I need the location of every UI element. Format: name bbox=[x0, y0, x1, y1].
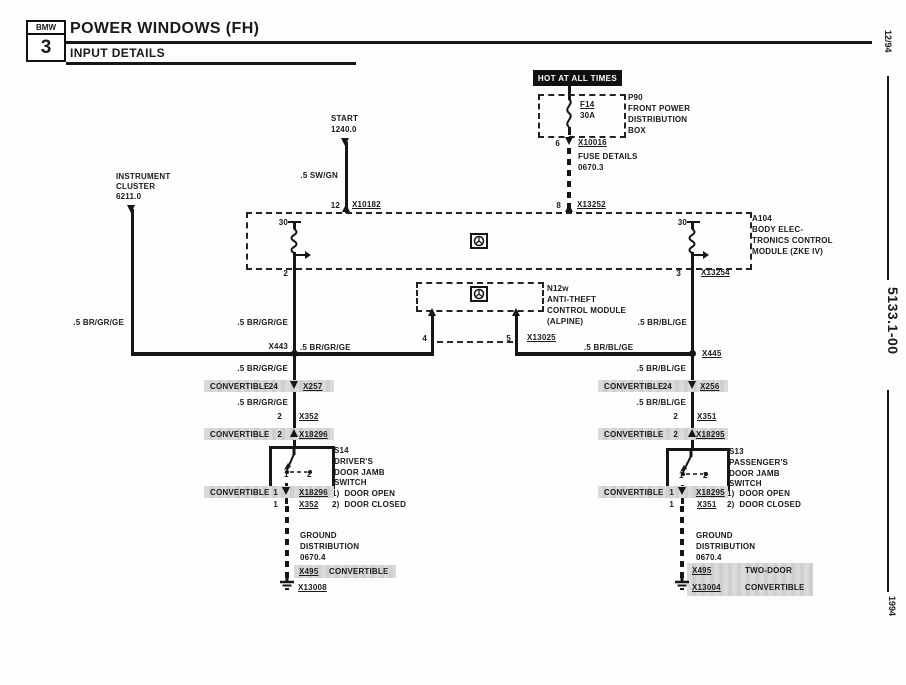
connector-x13008: X13008 bbox=[298, 583, 327, 592]
cluster-ref: 6211.0 bbox=[116, 192, 141, 201]
connector-x256: X256 bbox=[700, 382, 719, 391]
pin-8-label: 8 bbox=[549, 201, 561, 210]
fuse-label: F14 bbox=[580, 100, 594, 109]
a104-right-stub bbox=[691, 222, 694, 229]
convertible-note: CONVERTIBLE bbox=[329, 567, 389, 576]
s13-line1: PASSENGER'S bbox=[729, 458, 788, 467]
connector-x13252: X13252 bbox=[577, 200, 606, 209]
connector-arrow-down-icon bbox=[688, 381, 696, 389]
convertible-note: CONVERTIBLE bbox=[604, 488, 664, 497]
junction-dot bbox=[689, 350, 696, 357]
bus-left-wire-label: .5 BR/GR/GE bbox=[300, 343, 351, 352]
title-rule bbox=[66, 41, 872, 44]
pin-label: 1 bbox=[660, 488, 674, 497]
fuse-details-label: FUSE DETAILS bbox=[578, 152, 638, 161]
connector-x18296: X18296 bbox=[299, 488, 328, 497]
n12w-line1: ANTI-THEFT bbox=[547, 295, 596, 304]
margin-rule-top bbox=[887, 76, 889, 280]
fuse-rating: 30A bbox=[580, 111, 595, 120]
connector-arrow-down-icon bbox=[282, 487, 290, 495]
s13-line2: DOOR JAMB bbox=[729, 469, 780, 478]
wire-instrument-cluster bbox=[131, 209, 134, 356]
connector-x10182: X10182 bbox=[352, 200, 381, 209]
wire-s14-to-ground bbox=[285, 506, 289, 580]
pin-12-label: 12 bbox=[325, 201, 340, 210]
wiring-diagram-page: BMW 3 POWER WINDOWS (FH) INPUT DETAILS 1… bbox=[0, 0, 906, 685]
n12w-id: N12w bbox=[547, 284, 569, 293]
pin-3-label: 3 bbox=[665, 269, 681, 278]
pin-4-label: 4 bbox=[412, 334, 427, 343]
s14-id: S14 bbox=[334, 446, 349, 455]
a104-left-stub bbox=[293, 222, 296, 229]
cluster-line1: INSTRUMENT bbox=[116, 172, 170, 181]
connector-plane-x13025 bbox=[437, 341, 513, 343]
pin-30-left: 30 bbox=[272, 218, 288, 227]
wire-s13-to-ground bbox=[680, 506, 684, 580]
wire-n12w-pin4 bbox=[431, 315, 434, 354]
bus-right-wire-label: .5 BR/BL/GE bbox=[584, 343, 633, 352]
connector-arrow-down-icon bbox=[565, 137, 573, 145]
connector-x351: X351 bbox=[697, 412, 716, 421]
a104-id: A104 bbox=[752, 214, 772, 223]
pin-24-label: 24 bbox=[260, 382, 278, 391]
junction-x443-label: X443 bbox=[250, 342, 288, 351]
contact-arrow-right-icon bbox=[694, 250, 710, 260]
right-wire2-label: .5 BR/BL/GE bbox=[622, 398, 686, 407]
connector-arrow-up-icon bbox=[290, 429, 298, 437]
left-wire2-label: .5 BR/GR/GE bbox=[224, 398, 288, 407]
bus-left bbox=[131, 352, 434, 356]
page-title: POWER WINDOWS (FH) bbox=[70, 20, 259, 38]
convertible-note: CONVERTIBLE bbox=[745, 583, 805, 592]
s13-legend-1: 1) DOOR OPEN bbox=[727, 489, 790, 498]
ground-ref: 0670.4 bbox=[696, 553, 722, 562]
convertible-note: CONVERTIBLE bbox=[604, 430, 664, 439]
cluster-line2: CLUSTER bbox=[116, 182, 155, 191]
pin-label: 1 bbox=[264, 488, 278, 497]
fuse-icon bbox=[563, 99, 575, 127]
bmw-logo-text: BMW bbox=[28, 22, 64, 35]
n12w-line2: CONTROL MODULE bbox=[547, 306, 626, 315]
switch-contact-2: 2 bbox=[307, 470, 312, 479]
contact-arrow-right-icon bbox=[296, 250, 312, 260]
connector-x257: X257 bbox=[303, 382, 322, 391]
s13-legend-2: 2) DOOR CLOSED bbox=[727, 500, 801, 509]
margin-rule-bottom bbox=[887, 390, 889, 592]
s13-line3: SWITCH bbox=[729, 479, 762, 488]
a104-line1: BODY ELEC- bbox=[752, 225, 803, 234]
start-ref: 1240.0 bbox=[331, 125, 357, 134]
module-icon bbox=[470, 233, 488, 249]
connector-x13004: X13004 bbox=[692, 583, 721, 592]
s14-line2: DOOR JAMB bbox=[334, 468, 385, 477]
connector-x495: X495 bbox=[692, 566, 711, 575]
switch-contact-2: 2 bbox=[703, 471, 708, 480]
margin-sheet-number: 5133.1-00 bbox=[885, 287, 901, 355]
ground-line1: GROUND bbox=[300, 531, 337, 540]
connector-x18296: X18296 bbox=[299, 430, 328, 439]
junction-x445-label: X445 bbox=[702, 349, 721, 358]
door-jamb-switch-icon bbox=[666, 448, 724, 485]
start-label: START bbox=[331, 114, 358, 123]
pin-24-label: 24 bbox=[654, 382, 672, 391]
ground-icon bbox=[674, 577, 690, 591]
wire-n12w-pin5 bbox=[515, 315, 518, 354]
ground-ref: 0670.4 bbox=[300, 553, 326, 562]
pin-1-label: 1 bbox=[660, 500, 674, 509]
margin-issue-date: 12/94 bbox=[883, 30, 893, 53]
hot-at-all-times-banner: HOT AT ALL TIMES bbox=[533, 70, 622, 86]
junction-dot bbox=[291, 350, 298, 357]
connector-x18295: X18295 bbox=[696, 430, 725, 439]
page-subtitle: INPUT DETAILS bbox=[70, 46, 165, 60]
wire-start-label: .5 SW/GN bbox=[274, 171, 338, 180]
convertible-note: CONVERTIBLE bbox=[210, 488, 270, 497]
s14-line1: DRIVER'S bbox=[334, 457, 373, 466]
switch-contact-1: 1 bbox=[679, 471, 684, 480]
wire-pin3-label: .5 BR/BL/GE bbox=[623, 318, 687, 327]
margin-year: 1994 bbox=[887, 596, 897, 616]
ground-icon bbox=[279, 577, 295, 591]
connector-arrow-up-icon bbox=[688, 429, 696, 437]
s14-legend-2: 2) DOOR CLOSED bbox=[332, 500, 406, 509]
connector-x18295: X18295 bbox=[696, 488, 725, 497]
connector-arrow-down-icon bbox=[678, 487, 686, 495]
pin-2-label: 2 bbox=[664, 412, 678, 421]
wire-start bbox=[345, 142, 348, 213]
ground-line2: DISTRIBUTION bbox=[696, 542, 755, 551]
n12w-line3: (ALPINE) bbox=[547, 317, 583, 326]
s14-legend-1: 1) DOOR OPEN bbox=[332, 489, 395, 498]
s13-id: S13 bbox=[729, 447, 744, 456]
pin-label: 2 bbox=[268, 430, 282, 439]
wire-cluster-label: .5 BR/GR/GE bbox=[60, 318, 124, 327]
convertible-note: CONVERTIBLE bbox=[210, 430, 270, 439]
connector-x13254: X13254 bbox=[701, 268, 730, 277]
switch-contact-1: 1 bbox=[284, 470, 289, 479]
pin-label: 2 bbox=[664, 430, 678, 439]
bmw-series-number: 3 bbox=[28, 35, 64, 60]
left-wire1-label: .5 BR/GR/GE bbox=[224, 364, 288, 373]
pin-2-label: 2 bbox=[268, 412, 282, 421]
bus-right bbox=[515, 352, 695, 356]
connector-arrow-up-icon bbox=[342, 204, 350, 212]
two-door-note: TWO-DOOR bbox=[745, 566, 792, 575]
connector-arrow-down-icon bbox=[290, 381, 298, 389]
bmw-3-logo: BMW 3 bbox=[26, 20, 66, 62]
fuse-details-ref: 0670.3 bbox=[578, 163, 604, 172]
wire-fuse-bottom-stub bbox=[568, 127, 571, 135]
subtitle-rule bbox=[66, 62, 356, 65]
ground-line1: GROUND bbox=[696, 531, 733, 540]
power-box-line1: FRONT POWER bbox=[628, 104, 690, 113]
s14-line3: SWITCH bbox=[334, 478, 367, 487]
wire-pin2-label: .5 BR/GR/GE bbox=[224, 318, 288, 327]
pin-30-right: 30 bbox=[671, 218, 687, 227]
connector-x495: X495 bbox=[299, 567, 318, 576]
power-box-id: P90 bbox=[628, 93, 643, 102]
connector-x352: X352 bbox=[299, 500, 318, 509]
a104-line3: MODULE (ZKE IV) bbox=[752, 247, 823, 256]
power-box-line3: BOX bbox=[628, 126, 646, 135]
wire-x13252-dashed bbox=[567, 148, 571, 210]
pin-2-label: 2 bbox=[272, 269, 288, 278]
connector-x352: X352 bbox=[299, 412, 318, 421]
pin-1-label: 1 bbox=[264, 500, 278, 509]
a104-line2: TRONICS CONTROL bbox=[752, 236, 833, 245]
connector-arrow-up-icon bbox=[565, 204, 573, 212]
right-wire1-label: .5 BR/BL/GE bbox=[622, 364, 686, 373]
module-icon bbox=[470, 286, 488, 302]
connector-x13025: X13025 bbox=[527, 333, 556, 342]
connector-x10016: X10016 bbox=[578, 138, 607, 147]
ground-line2: DISTRIBUTION bbox=[300, 542, 359, 551]
door-jamb-switch-icon bbox=[269, 446, 329, 483]
connector-x351: X351 bbox=[697, 500, 716, 509]
power-box-line2: DISTRIBUTION bbox=[628, 115, 687, 124]
pin-6-label: 6 bbox=[548, 139, 560, 148]
